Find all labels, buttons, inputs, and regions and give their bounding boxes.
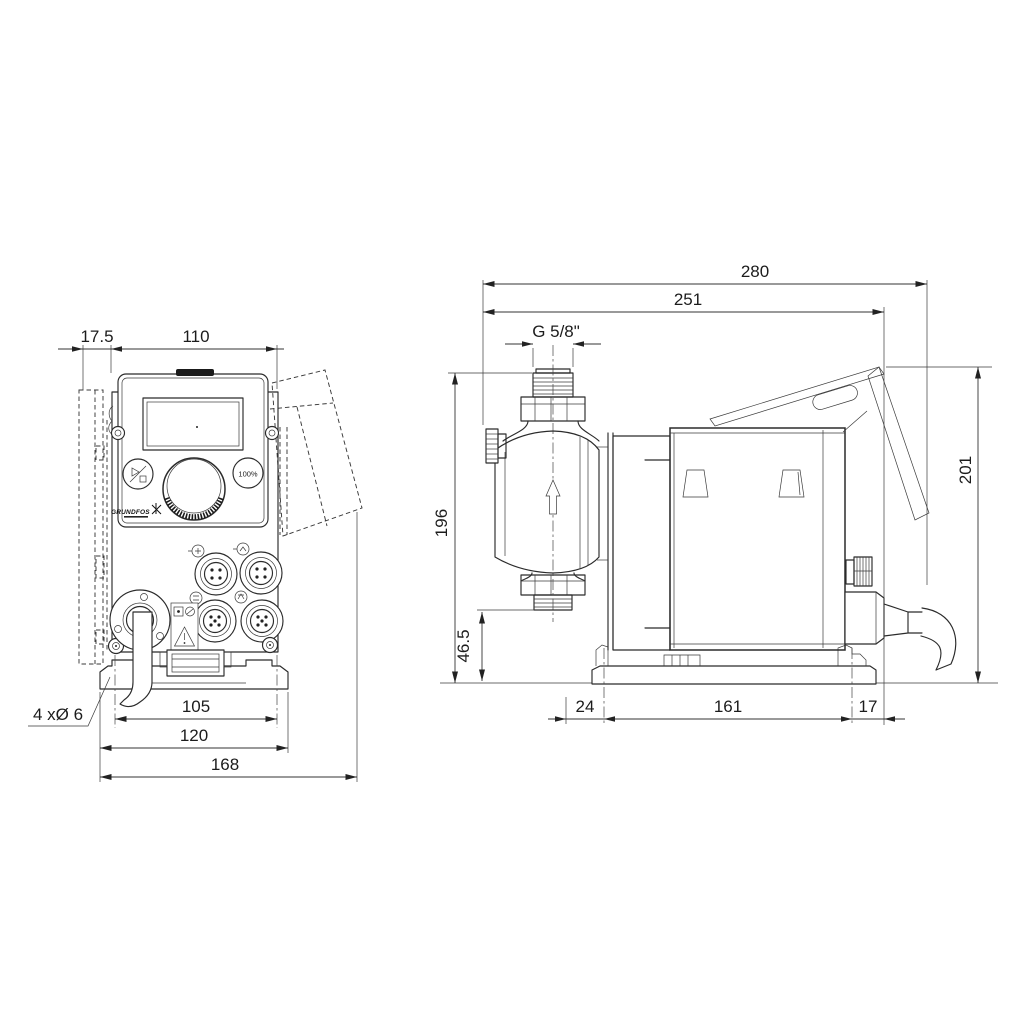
- dim-17-5-label: 17.5: [80, 327, 113, 346]
- connector[interactable]: [241, 600, 283, 642]
- dim-105-label: 105: [182, 697, 210, 716]
- dim-161-label: 161: [714, 697, 742, 716]
- panel-screw-left: [112, 427, 125, 440]
- panel-screw-right: [266, 427, 279, 440]
- din-clip: [160, 650, 231, 676]
- click-wheel[interactable]: [163, 458, 225, 520]
- warning-label: [171, 603, 198, 651]
- dim-110-label: 110: [182, 327, 209, 346]
- dosing-pump-dimensional-drawing: 100% GRUNDFOS: [0, 0, 1024, 1024]
- control-panel: 100% GRUNDFOS: [111, 369, 279, 527]
- connector[interactable]: [194, 600, 236, 642]
- dim-17-label: 17: [859, 697, 878, 716]
- dim-168-label: 168: [211, 755, 239, 774]
- housing-screw: [263, 638, 278, 653]
- dim-46-5-label: 46.5: [454, 629, 473, 662]
- connector[interactable]: [240, 552, 282, 594]
- dosing-head-body: [495, 431, 599, 573]
- dim-280-label: 280: [741, 262, 769, 281]
- technical-drawing-page: 100% GRUNDFOS: [0, 0, 1024, 1024]
- connector[interactable]: [195, 553, 237, 595]
- display: [143, 398, 243, 450]
- start-stop-button[interactable]: [123, 459, 153, 489]
- thread-size-label: G 5/8": [532, 322, 580, 341]
- dim-251-label: 251: [674, 290, 702, 309]
- dim-201-label: 201: [956, 456, 975, 484]
- brand-logo-text: GRUNDFOS: [111, 509, 150, 516]
- dim-196-label: 196: [432, 509, 451, 537]
- capacity-100-button[interactable]: 100%: [233, 458, 263, 488]
- capacity-button-label: 100%: [238, 470, 258, 479]
- dim-24-label: 24: [576, 697, 595, 716]
- mounting-holes-label: 4 xØ 6: [33, 705, 83, 724]
- dim-120-label: 120: [180, 726, 208, 745]
- top-tab: [176, 369, 214, 376]
